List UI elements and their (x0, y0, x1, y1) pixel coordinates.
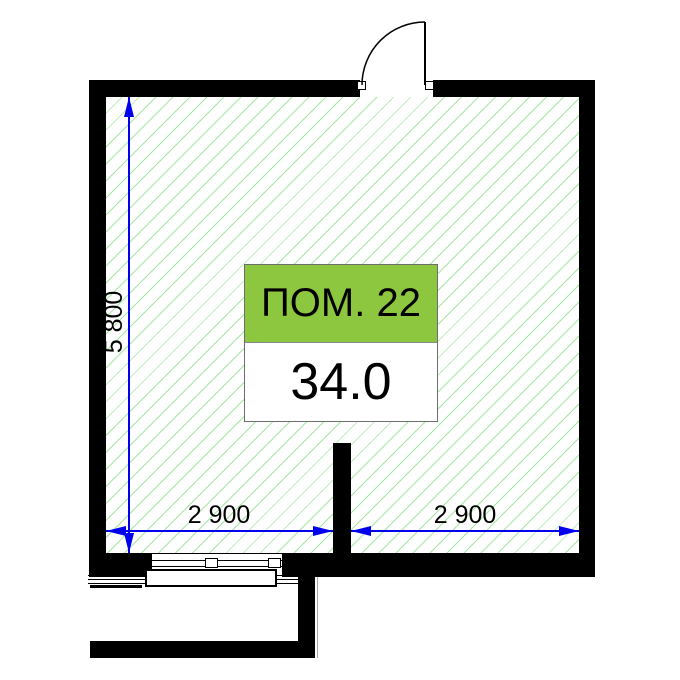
balcony-wall-bottom (90, 641, 315, 658)
balcony-glazing-right (277, 575, 298, 576)
partition-wall (333, 443, 351, 553)
room-label-header: ПОМ. 22 (245, 265, 437, 343)
dim-vertical-line (128, 97, 130, 553)
window-opening-edge (152, 553, 282, 554)
dim-horizontal-left-line (106, 530, 333, 532)
adjacent-wall-hairline (317, 577, 318, 658)
dim-horizontal-left-arrow-start-icon (106, 526, 126, 536)
balcony-glazing-right (277, 583, 298, 584)
dim-horizontal-left-label: 2 900 (159, 502, 279, 528)
wall-bottom-left-segment (89, 553, 152, 577)
dim-vertical-label: 5 800 (101, 262, 127, 382)
room-name: ПОМ. 22 (261, 281, 421, 326)
room-area-section: 34.0 (245, 343, 437, 421)
entry-door-icon (350, 10, 440, 100)
door-swing-arc (362, 22, 425, 85)
wall-top-right-segment (433, 80, 595, 97)
wall-bottom-right-segment (282, 553, 595, 577)
wall-right (579, 80, 595, 577)
balcony-glazing-left (88, 575, 145, 576)
room-label-box[interactable]: ПОМ. 22 34.0 (244, 264, 438, 422)
dim-horizontal-right-arrow-start-icon (351, 526, 371, 536)
dim-horizontal-right-label: 2 900 (405, 502, 525, 528)
floor-plan-canvas: 5 800 2 900 2 900 ПОМ. 22 34.0 (0, 0, 680, 680)
dim-horizontal-right-arrow-end-icon (559, 526, 579, 536)
wall-top-left-segment (89, 80, 360, 97)
balcony-glazing-left (88, 583, 145, 584)
dim-horizontal-left-arrow-end-icon (313, 526, 333, 536)
room-area: 34.0 (290, 352, 391, 412)
balcony-glazing-right (277, 579, 298, 580)
window-sill (145, 569, 277, 587)
window-casement-left-icon (205, 558, 218, 568)
window-casement-right-icon (268, 558, 281, 568)
dim-vertical-arrow-bottom-icon (124, 533, 134, 553)
balcony-glazing-left (88, 579, 145, 580)
dim-horizontal-right-line (351, 530, 579, 532)
dim-vertical-arrow-top-icon (124, 97, 134, 117)
balcony-glazing-left-edge (90, 585, 142, 588)
